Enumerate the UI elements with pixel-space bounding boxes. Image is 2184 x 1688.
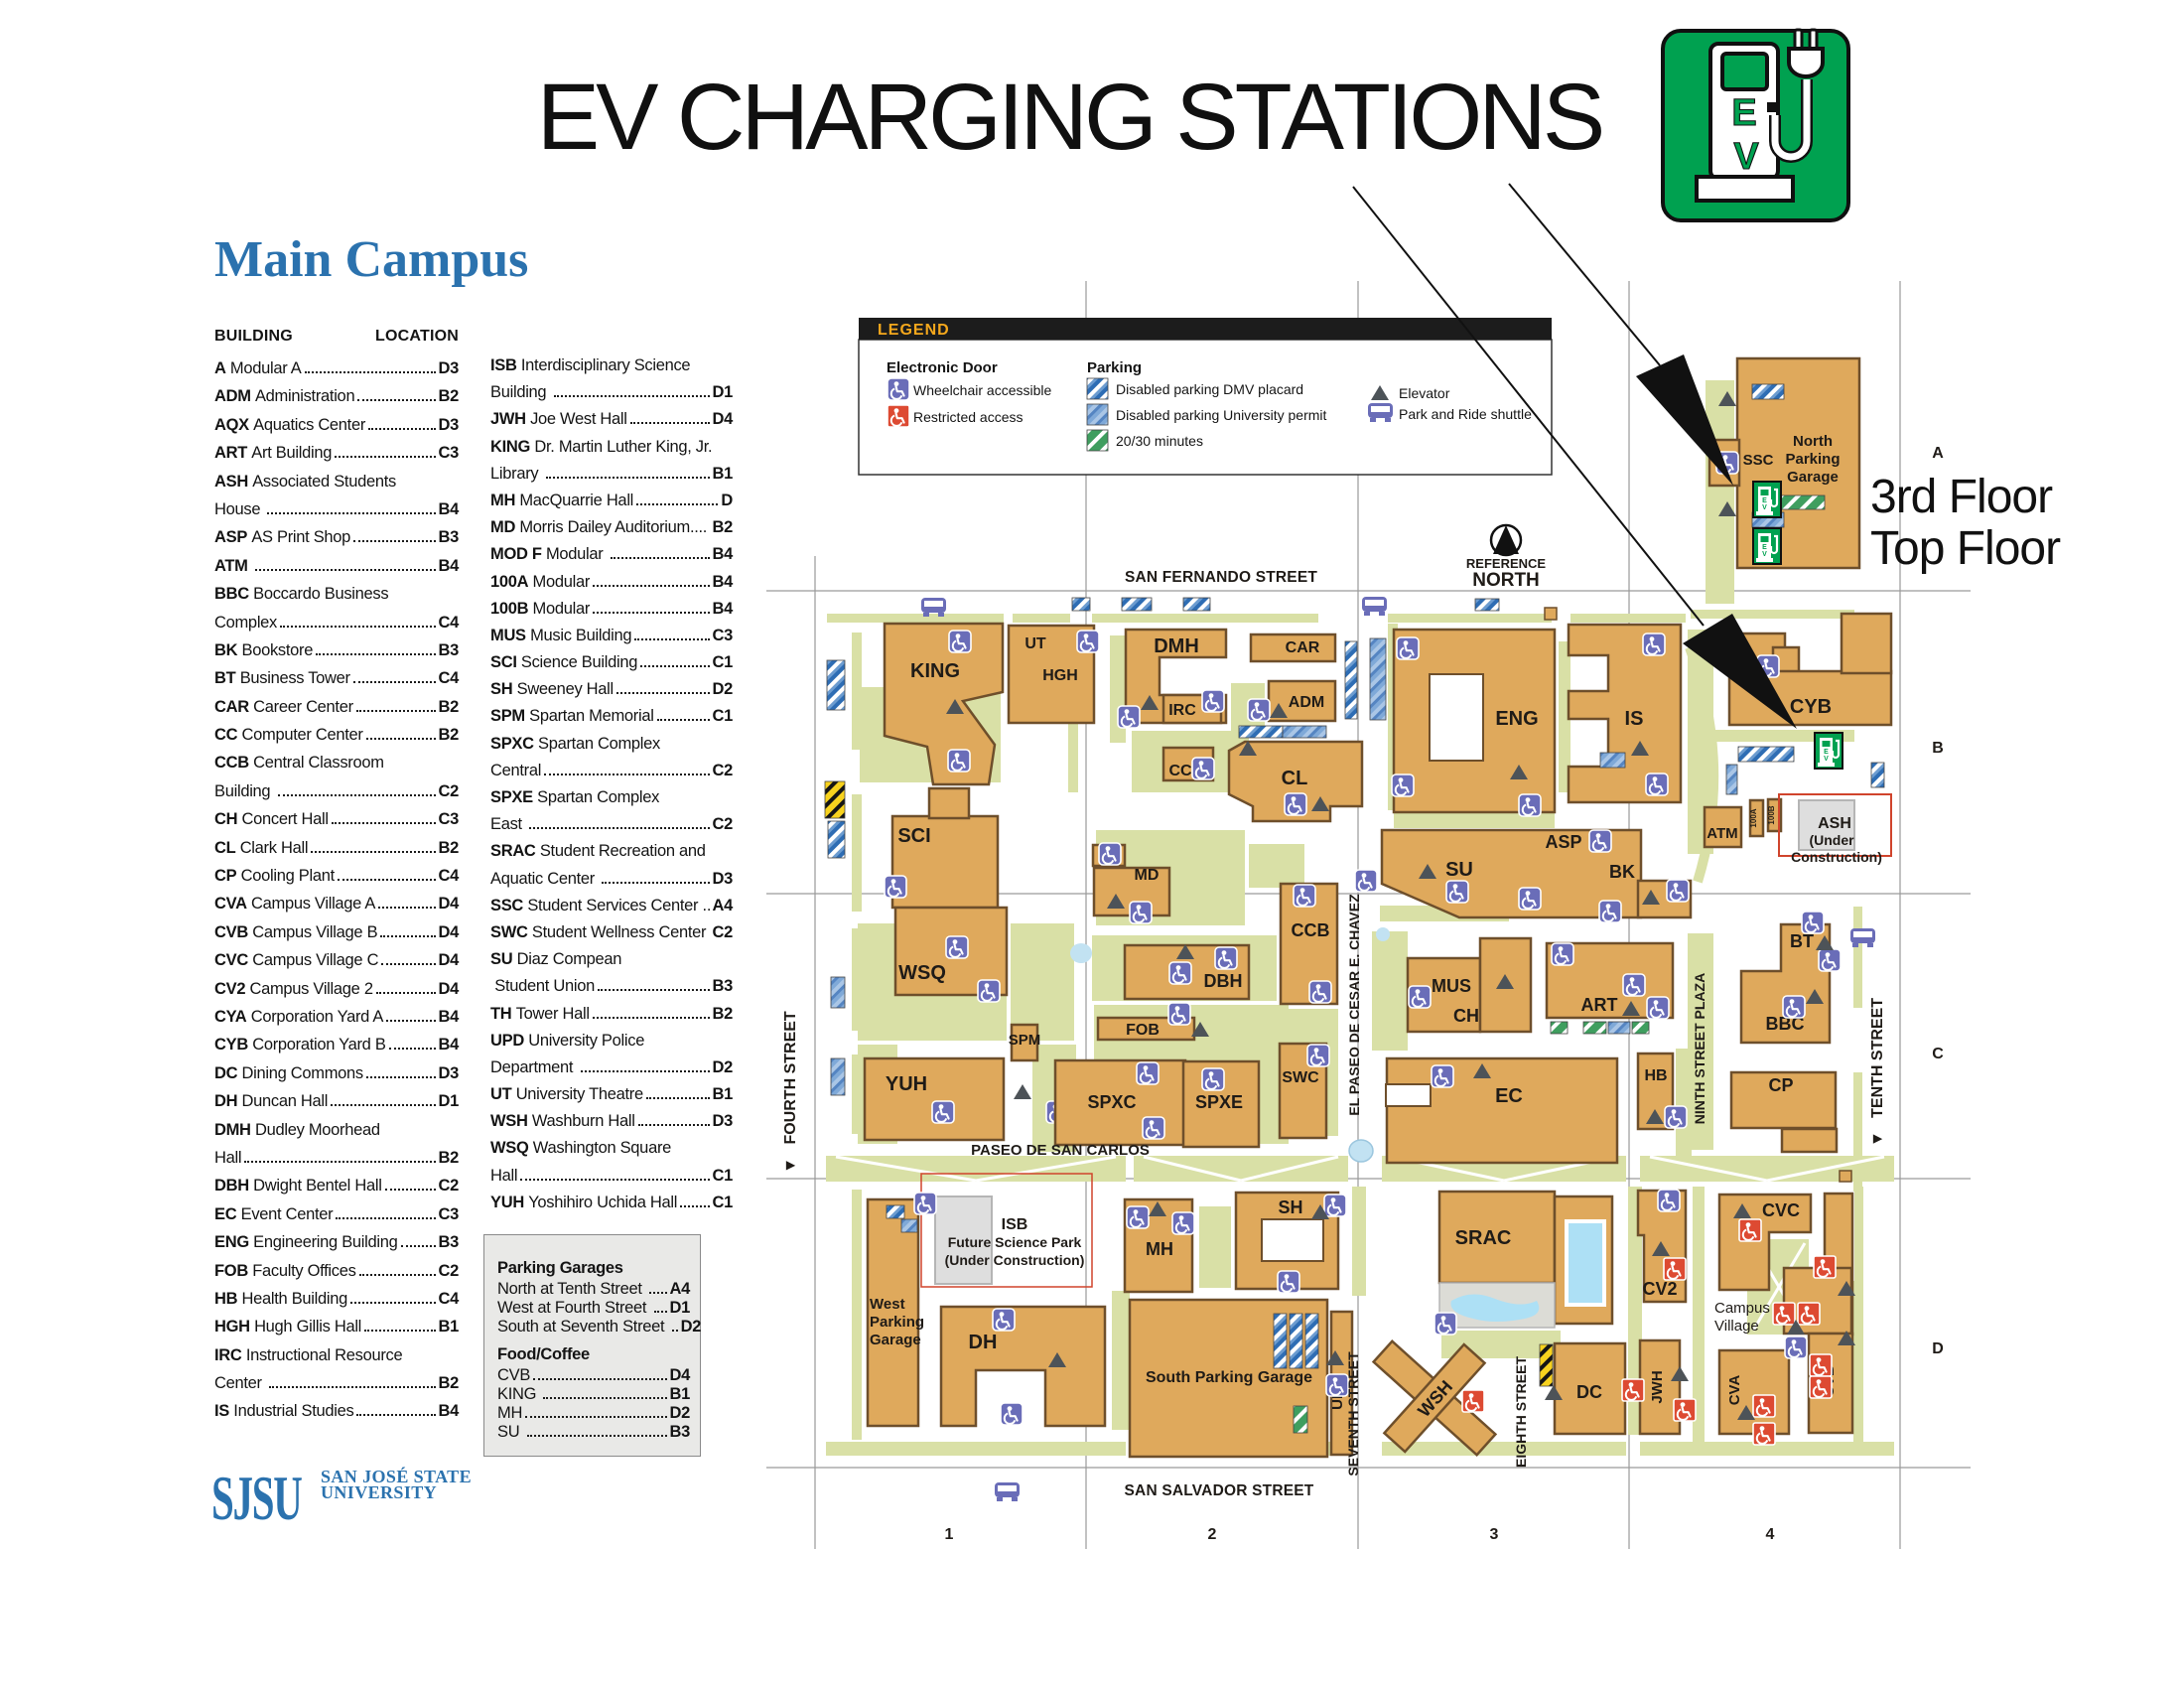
svg-text:NORTH: NORTH [1472, 570, 1540, 591]
svg-text:Construction): Construction) [1791, 849, 1882, 865]
svg-text:(Under Construction): (Under Construction) [945, 1252, 1085, 1268]
svg-text:3rd Floor: 3rd Floor [1870, 471, 2053, 523]
svg-text:SPXC: SPXC [1087, 1092, 1136, 1112]
svg-text:SEVENTH STREET: SEVENTH STREET [1345, 1351, 1361, 1477]
svg-text:ART: ART [1581, 995, 1618, 1015]
svg-text:ATM: ATM [1706, 825, 1737, 842]
svg-text:South Parking Garage: South Parking Garage [1146, 1369, 1312, 1386]
svg-text:CVC: CVC [1762, 1200, 1800, 1220]
svg-text:A: A [1932, 445, 1944, 462]
svg-text:MD: MD [1135, 867, 1160, 884]
svg-text:Park and Ride shuttle: Park and Ride shuttle [1399, 406, 1532, 422]
svg-text:CAR: CAR [1286, 639, 1320, 656]
svg-text:SCI: SCI [897, 825, 930, 847]
svg-text:CYB: CYB [1790, 696, 1832, 718]
svg-text:SSC: SSC [1743, 452, 1774, 469]
svg-text:IRC: IRC [1168, 702, 1196, 719]
svg-text:IS: IS [1625, 708, 1644, 730]
svg-text:100B: 100B [1767, 805, 1776, 824]
svg-text:CVA: CVA [1726, 1375, 1743, 1406]
svg-text:SWC: SWC [1282, 1069, 1319, 1086]
svg-text:ISB: ISB [1002, 1216, 1028, 1233]
svg-text:HGH: HGH [1042, 667, 1078, 684]
svg-text:(Under: (Under [1809, 832, 1854, 848]
svg-text:CP: CP [1768, 1075, 1793, 1095]
svg-text:DBH: DBH [1204, 971, 1243, 991]
svg-text:SU: SU [1445, 859, 1473, 881]
svg-text:EC: EC [1495, 1085, 1523, 1107]
svg-text:UT: UT [1024, 635, 1046, 652]
svg-text:Parking: Parking [1087, 359, 1142, 376]
svg-text:1: 1 [945, 1526, 954, 1543]
svg-text:C: C [1932, 1046, 1944, 1062]
svg-text:▼ FOURTH STREET: ▼ FOURTH STREET [782, 1011, 799, 1174]
svg-text:Garage: Garage [1787, 469, 1839, 486]
svg-text:Top Floor: Top Floor [1870, 522, 2061, 575]
svg-text:CC: CC [1168, 763, 1192, 779]
svg-text:ENG: ENG [1495, 708, 1538, 730]
svg-text:DMH: DMH [1154, 635, 1199, 657]
svg-text:EL PASEO DE CESAR E. CHAVEZ: EL PASEO DE CESAR E. CHAVEZ [1346, 894, 1362, 1116]
svg-text:KING: KING [910, 660, 960, 682]
svg-text:Restricted access: Restricted access [913, 409, 1023, 425]
svg-text:Disabled parking University pe: Disabled parking University permit [1116, 407, 1327, 423]
svg-text:D: D [1932, 1340, 1944, 1357]
svg-text:EIGHTH STREET: EIGHTH STREET [1513, 1356, 1529, 1468]
svg-text:SAN SALVADOR STREET: SAN SALVADOR STREET [1125, 1482, 1314, 1499]
svg-text:Disabled parking DMV placard: Disabled parking DMV placard [1116, 381, 1303, 397]
svg-text:V: V [1733, 136, 1759, 178]
svg-text:West: West [870, 1296, 905, 1313]
svg-text:ASP: ASP [1545, 832, 1581, 852]
svg-text:SPXE: SPXE [1195, 1092, 1243, 1112]
svg-text:B: B [1932, 740, 1944, 757]
svg-text:BK: BK [1609, 862, 1635, 882]
svg-text:FOB: FOB [1126, 1022, 1160, 1039]
svg-text:3: 3 [1490, 1526, 1499, 1543]
svg-text:BT: BT [1790, 931, 1814, 951]
svg-text:CCB: CCB [1292, 920, 1330, 940]
svg-text:CH: CH [1453, 1006, 1479, 1026]
svg-text:MUS: MUS [1432, 976, 1471, 996]
svg-text:SPM: SPM [1009, 1032, 1041, 1049]
svg-text:JWH: JWH [1649, 1370, 1666, 1403]
svg-text:SAN FERNANDO STREET: SAN FERNANDO STREET [1125, 569, 1317, 586]
svg-text:SH: SH [1278, 1197, 1302, 1217]
svg-text:ASH: ASH [1818, 815, 1851, 832]
svg-text:Garage: Garage [870, 1332, 921, 1348]
svg-text:PASEO DE SAN CARLOS: PASEO DE SAN CARLOS [971, 1142, 1150, 1159]
svg-text:Parking: Parking [870, 1314, 924, 1331]
svg-text:WSQ: WSQ [898, 962, 946, 984]
svg-text:ADM: ADM [1289, 694, 1324, 711]
svg-text:Electronic Door: Electronic Door [887, 359, 998, 376]
svg-text:Village: Village [1714, 1318, 1759, 1335]
svg-text:Future Science Park: Future Science Park [948, 1234, 1082, 1250]
svg-text:2: 2 [1208, 1526, 1217, 1543]
svg-text:▼ TENTH STREET: ▼ TENTH STREET [1869, 998, 1886, 1147]
svg-text:Elevator: Elevator [1399, 385, 1450, 401]
svg-text:SRAC: SRAC [1455, 1227, 1512, 1249]
svg-text:20/30 minutes: 20/30 minutes [1116, 433, 1203, 449]
svg-text:4: 4 [1766, 1526, 1775, 1543]
svg-text:REFERENCE: REFERENCE [1466, 556, 1547, 571]
svg-text:CV2: CV2 [1642, 1279, 1677, 1299]
svg-text:Wheelchair accessible: Wheelchair accessible [913, 382, 1051, 398]
svg-text:E: E [1731, 92, 1756, 134]
svg-text:Parking: Parking [1785, 451, 1840, 468]
svg-text:LEGEND: LEGEND [878, 322, 950, 339]
svg-text:100A: 100A [1749, 808, 1758, 827]
svg-text:HB: HB [1644, 1067, 1667, 1084]
svg-text:YUH: YUH [886, 1073, 927, 1095]
svg-text:CL: CL [1282, 768, 1308, 789]
svg-text:MH: MH [1146, 1239, 1173, 1259]
svg-text:North: North [1793, 433, 1833, 450]
svg-text:DH: DH [969, 1332, 998, 1353]
svg-text:DC: DC [1576, 1382, 1602, 1402]
svg-text:Campus: Campus [1714, 1300, 1770, 1317]
svg-text:NINTH STREET PLAZA: NINTH STREET PLAZA [1692, 973, 1707, 1124]
